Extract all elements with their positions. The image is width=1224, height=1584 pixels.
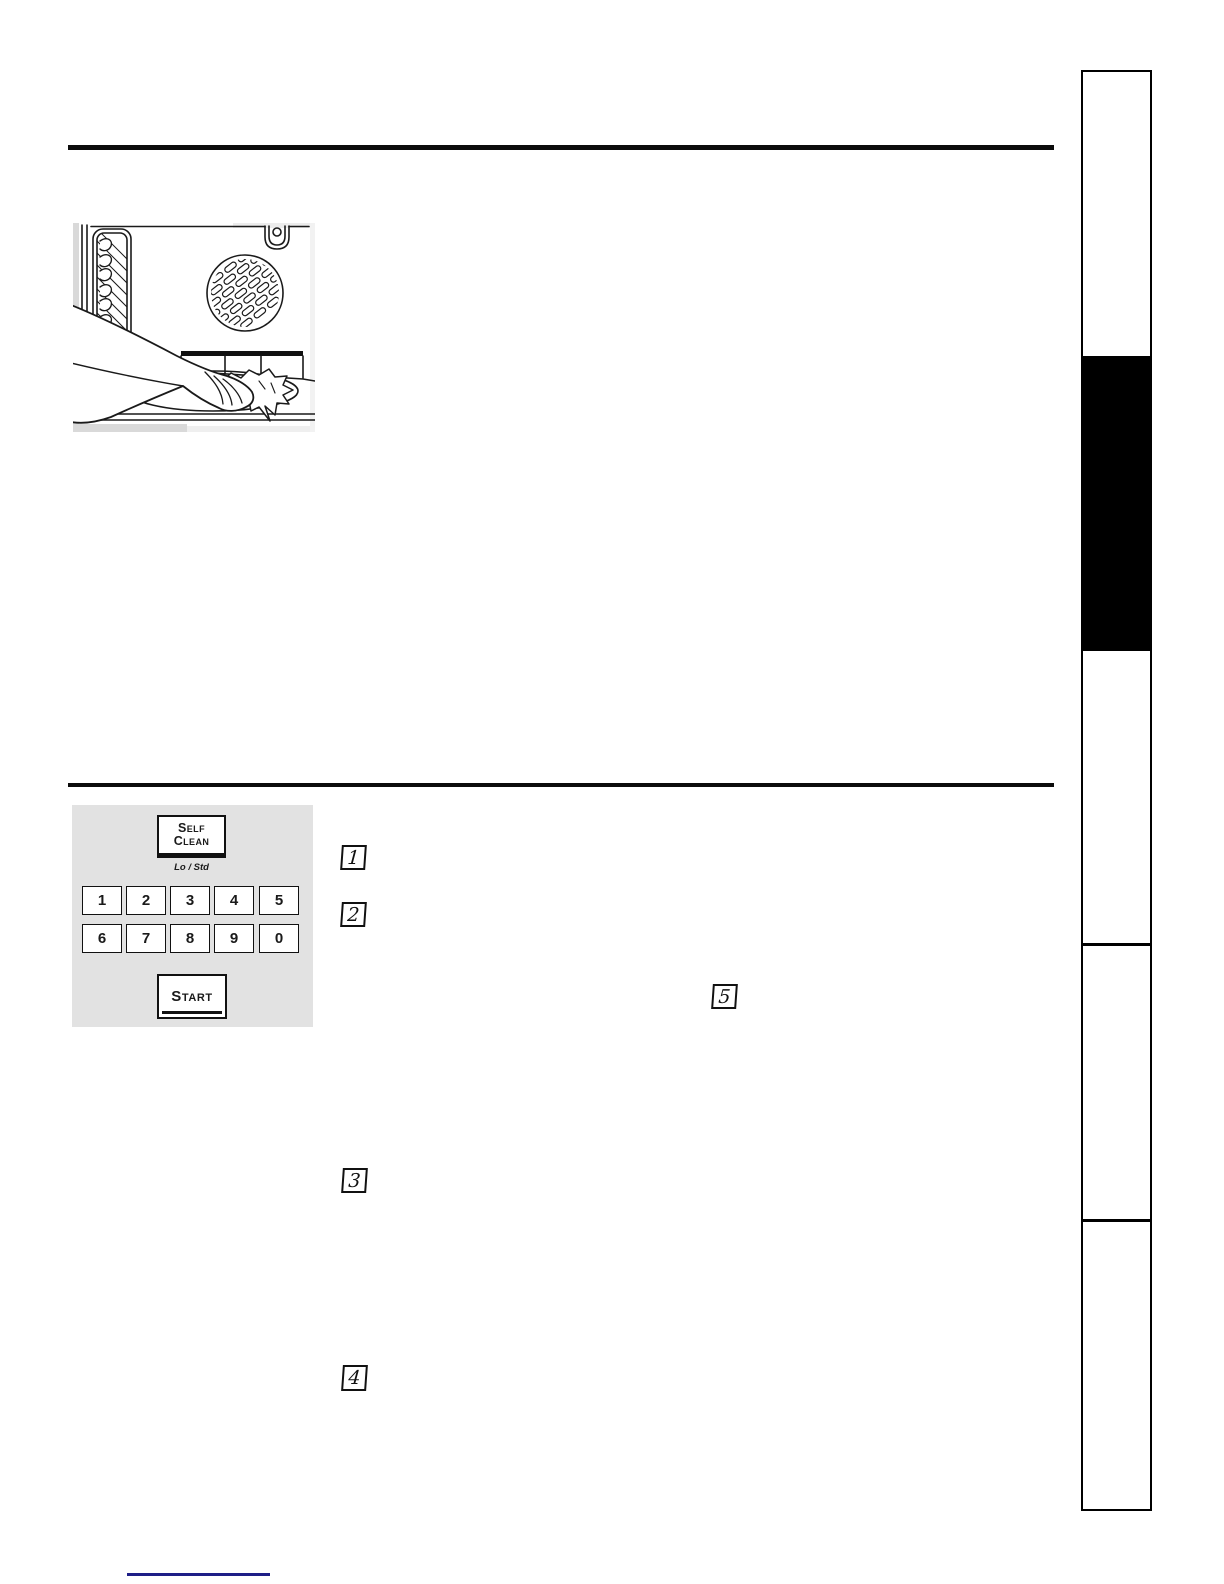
keypad-key-3: 3 (170, 886, 210, 915)
start-button: Start (157, 974, 227, 1019)
section-tab-4 (1083, 943, 1150, 1219)
self-clean-button: Self Clean (157, 815, 226, 858)
keypad-key-2: 2 (126, 886, 166, 915)
keypad-key-4: 4 (214, 886, 254, 915)
mid-section-rule (68, 783, 1054, 787)
keypad-key-0: 0 (259, 924, 299, 953)
hand-wiping-oven-icon (73, 223, 315, 432)
manual-page: Self Clean Lo / Std 1 2 3 4 5 6 7 8 9 0 … (0, 0, 1224, 1584)
step-number-1: 1 (340, 845, 367, 870)
section-tab-column (1081, 70, 1152, 1511)
step-number-3: 3 (341, 1168, 368, 1193)
keypad-key-9: 9 (214, 924, 254, 953)
top-section-rule (68, 145, 1054, 150)
oven-control-panel-figure: Self Clean Lo / Std 1 2 3 4 5 6 7 8 9 0 … (72, 805, 313, 1027)
section-tab-2-active-black (1083, 356, 1150, 649)
step-number-5: 5 (711, 984, 738, 1009)
keypad-key-6: 6 (82, 924, 122, 953)
keypad-key-5: 5 (259, 886, 299, 915)
step-number-2: 2 (340, 902, 367, 927)
section-tab-5 (1083, 1219, 1150, 1509)
section-tab-3 (1083, 649, 1150, 943)
keypad-key-1: 1 (82, 886, 122, 915)
oven-wipe-figure (73, 223, 315, 432)
section-tab-1 (1083, 72, 1150, 356)
keypad-key-7: 7 (126, 924, 166, 953)
step-number-4: 4 (341, 1365, 368, 1391)
footer-link-underline (127, 1573, 270, 1576)
keypad-key-8: 8 (170, 924, 210, 953)
self-clean-lo-std-label: Lo / Std (157, 862, 226, 873)
